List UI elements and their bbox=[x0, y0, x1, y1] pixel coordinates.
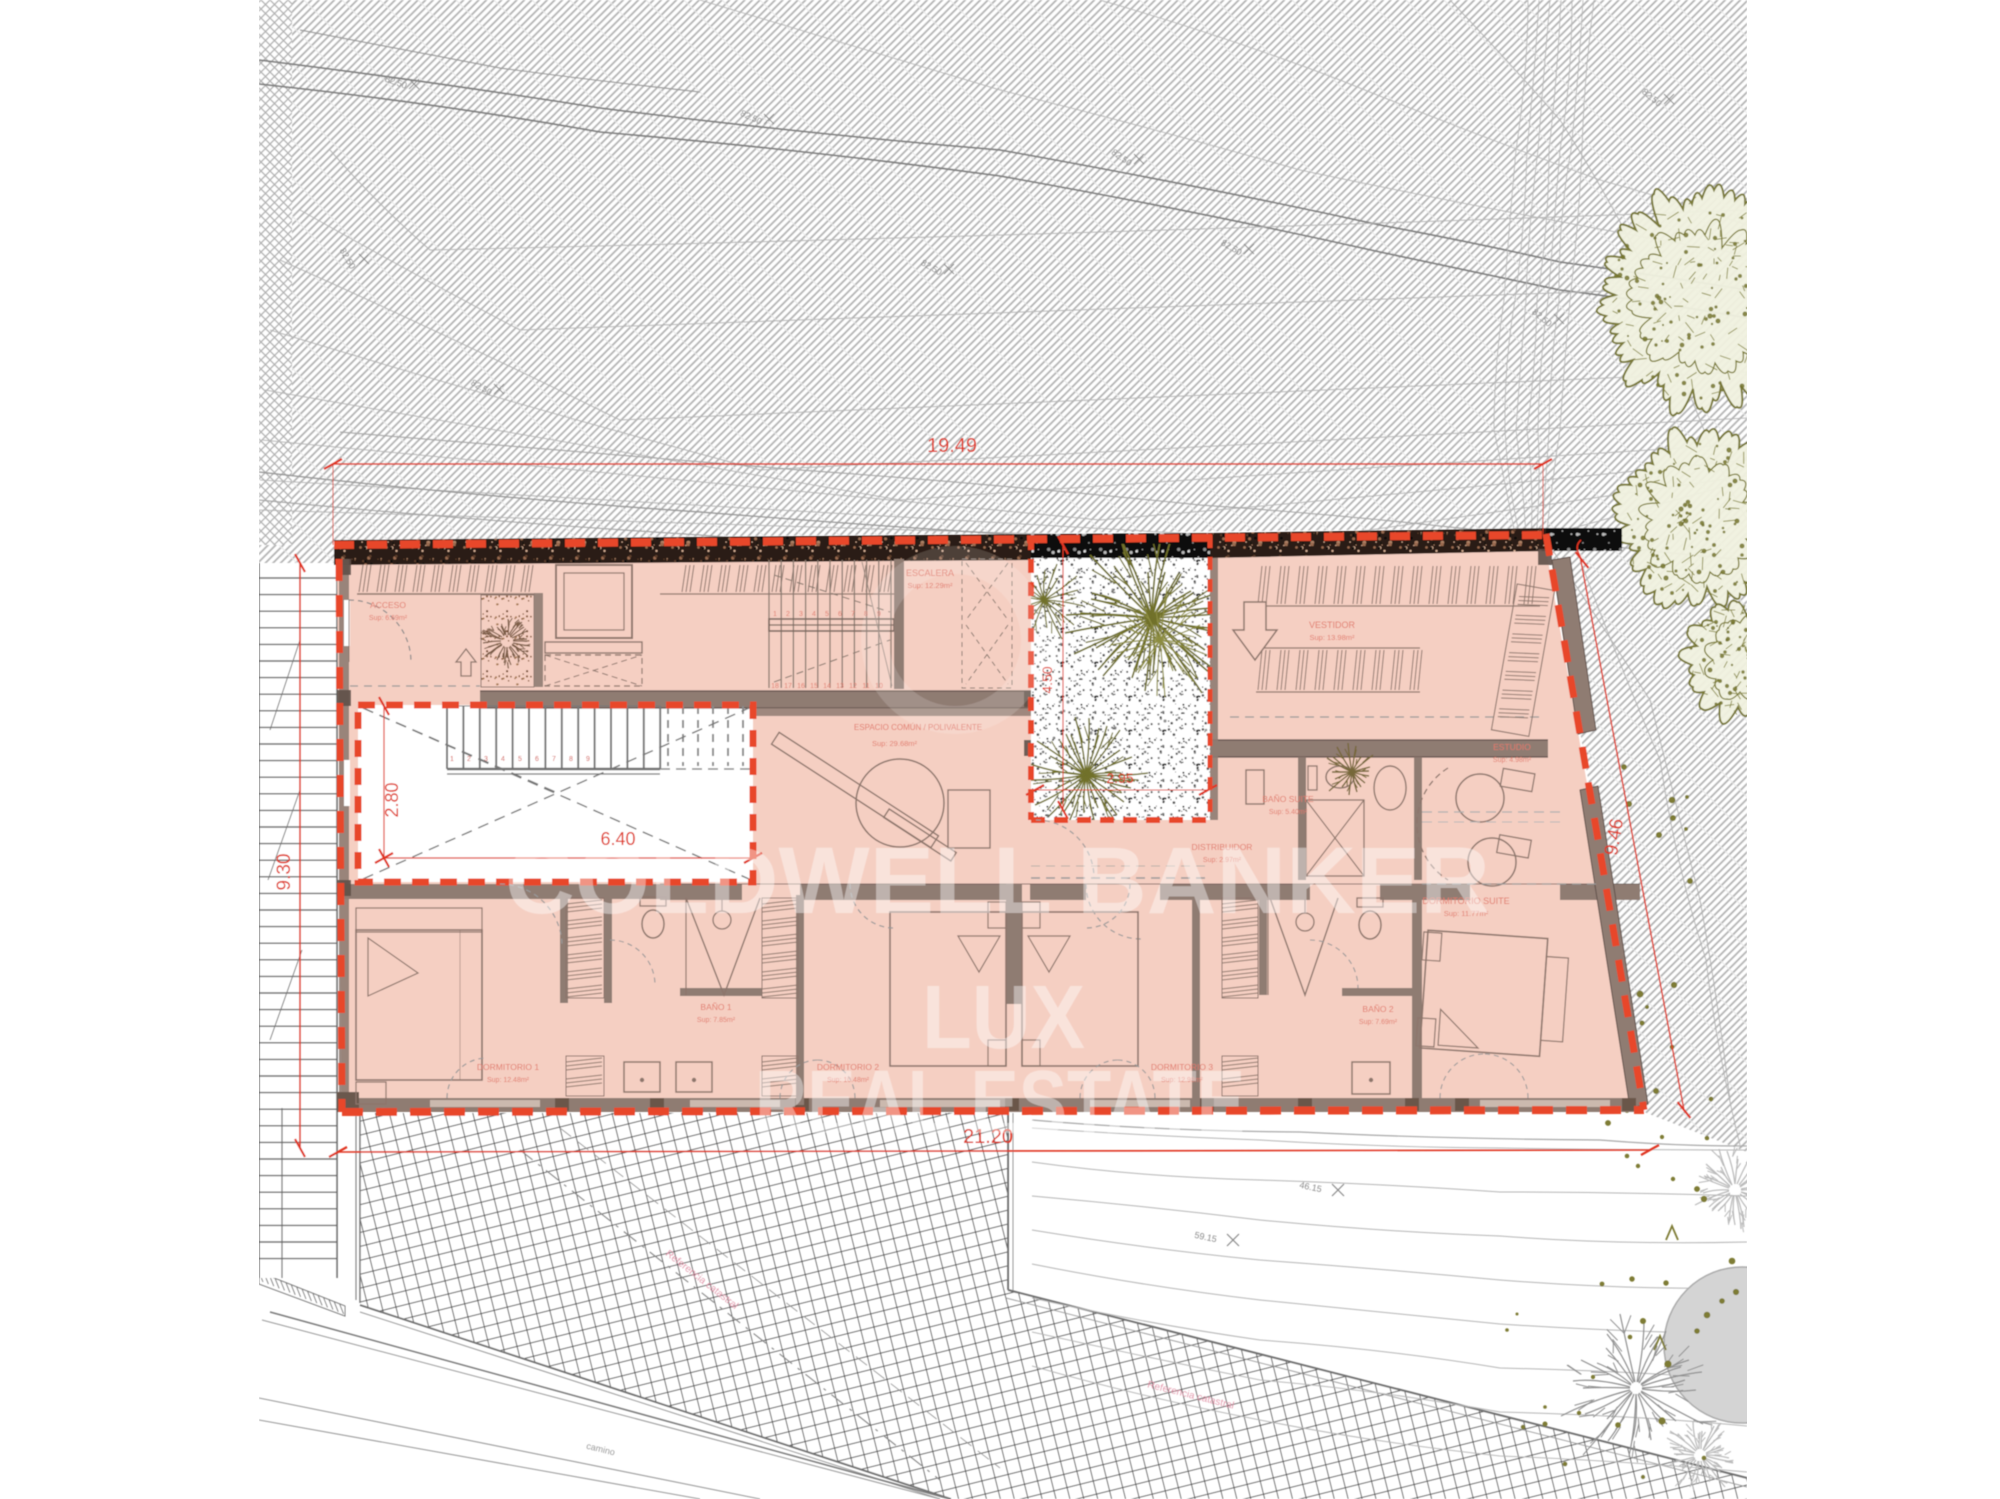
svg-text:DORMITORIO 1: DORMITORIO 1 bbox=[477, 1062, 539, 1072]
svg-text:2.80: 2.80 bbox=[382, 782, 402, 817]
svg-text:5: 5 bbox=[825, 611, 829, 618]
svg-text:3: 3 bbox=[799, 611, 803, 618]
svg-text:17: 17 bbox=[784, 683, 792, 690]
svg-text:19.49: 19.49 bbox=[927, 435, 977, 457]
svg-text:REAL ESTATE: REAL ESTATE bbox=[755, 1053, 1245, 1153]
svg-text:4: 4 bbox=[501, 756, 505, 763]
svg-text:Sup: 6.69m²: Sup: 6.69m² bbox=[369, 615, 408, 622]
svg-text:18: 18 bbox=[771, 683, 779, 690]
svg-text:2.95: 2.95 bbox=[1106, 770, 1133, 786]
svg-text:Sup: 29.68m²: Sup: 29.68m² bbox=[872, 739, 918, 748]
svg-text:5: 5 bbox=[518, 756, 522, 763]
svg-text:7: 7 bbox=[851, 611, 855, 618]
svg-text:Sup: 13.98m²: Sup: 13.98m² bbox=[1309, 633, 1355, 642]
svg-text:BAÑO 1: BAÑO 1 bbox=[700, 1002, 731, 1012]
svg-text:Sup: 4.98m²: Sup: 4.98m² bbox=[1493, 757, 1532, 764]
svg-text:14: 14 bbox=[823, 683, 831, 690]
svg-text:BAÑO 2: BAÑO 2 bbox=[1362, 1004, 1393, 1014]
svg-text:1: 1 bbox=[450, 756, 454, 763]
svg-text:BAÑO SUITE: BAÑO SUITE bbox=[1262, 794, 1314, 804]
svg-text:11: 11 bbox=[862, 683, 869, 690]
svg-text:Sup: 5.40m²: Sup: 5.40m² bbox=[1269, 809, 1308, 816]
svg-text:6: 6 bbox=[838, 611, 842, 618]
svg-text:2: 2 bbox=[467, 756, 471, 763]
svg-text:16: 16 bbox=[797, 683, 805, 690]
svg-text:9.30: 9.30 bbox=[274, 854, 295, 891]
svg-text:ESTUDIO: ESTUDIO bbox=[1493, 742, 1531, 752]
svg-text:1: 1 bbox=[773, 611, 777, 618]
svg-text:7: 7 bbox=[552, 756, 556, 763]
svg-text:8: 8 bbox=[569, 756, 573, 763]
svg-text:12: 12 bbox=[849, 683, 857, 690]
svg-text:4: 4 bbox=[812, 611, 816, 618]
svg-text:13: 13 bbox=[836, 683, 844, 690]
svg-text:VESTIDOR: VESTIDOR bbox=[1309, 620, 1356, 630]
svg-text:15: 15 bbox=[810, 683, 818, 690]
svg-text:6: 6 bbox=[535, 756, 539, 763]
svg-text:2: 2 bbox=[786, 611, 790, 618]
svg-text:Sup: 7.69m²: Sup: 7.69m² bbox=[1359, 1019, 1398, 1026]
svg-text:9: 9 bbox=[586, 756, 590, 763]
svg-text:Sup: 7.85m²: Sup: 7.85m² bbox=[697, 1017, 736, 1024]
svg-text:COLDWELL BANKER: COLDWELL BANKER bbox=[505, 828, 1490, 934]
svg-text:ACCESO: ACCESO bbox=[370, 600, 406, 610]
svg-text:Sup: 12.48m²: Sup: 12.48m² bbox=[487, 1077, 530, 1084]
